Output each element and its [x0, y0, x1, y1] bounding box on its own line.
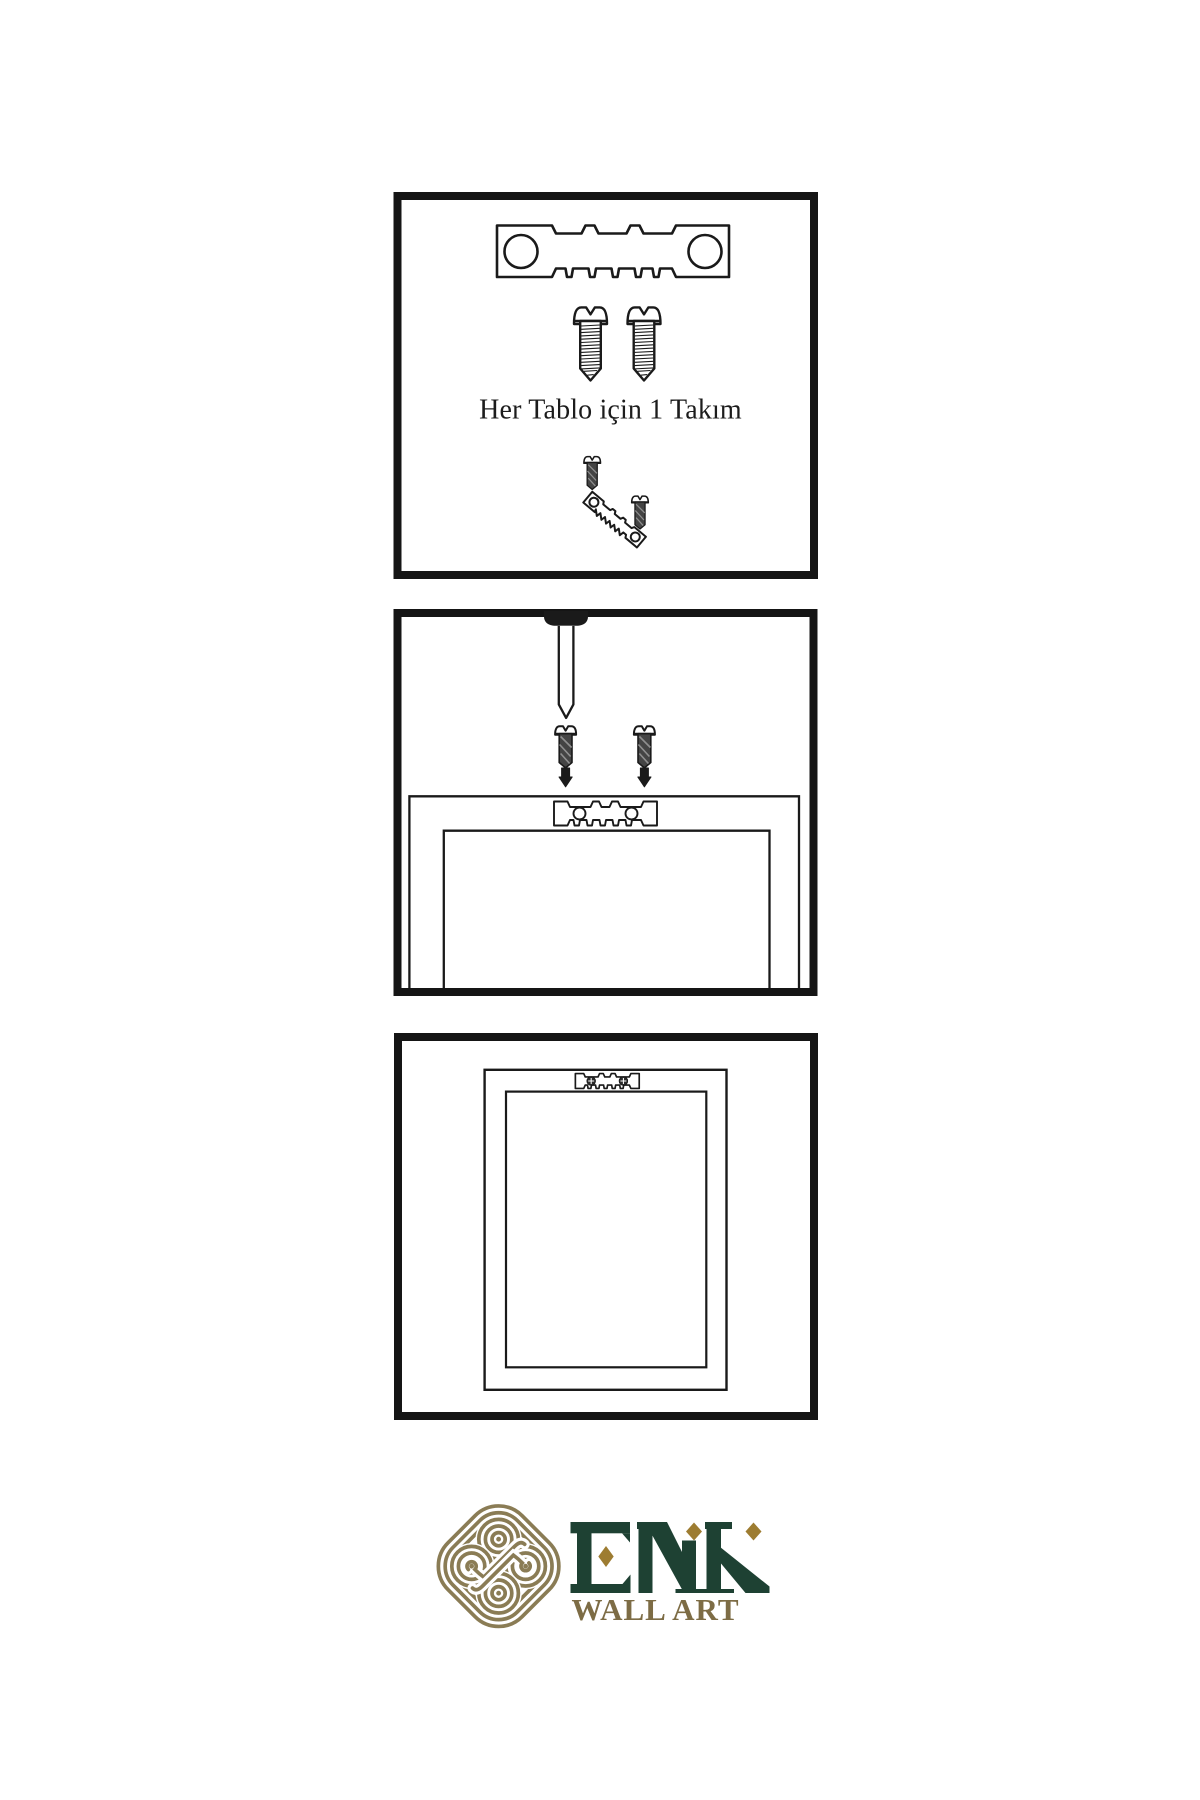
svg-text:WALL ART: WALL ART — [572, 1592, 740, 1627]
svg-text:Her Tablo için 1 Takım: Her Tablo için 1 Takım — [479, 395, 742, 426]
